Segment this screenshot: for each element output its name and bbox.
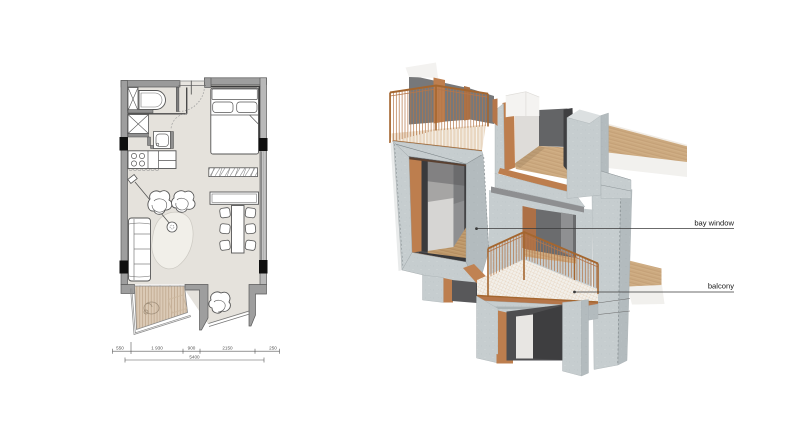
svg-text:900: 900 xyxy=(188,346,196,351)
svg-text:1 930: 1 930 xyxy=(151,346,163,351)
svg-text:balcony: balcony xyxy=(708,282,734,291)
svg-text:bay window: bay window xyxy=(694,219,734,228)
svg-text:250: 250 xyxy=(269,346,277,351)
svg-text:5400: 5400 xyxy=(189,355,200,360)
svg-text:2150: 2150 xyxy=(222,346,233,351)
svg-text:550: 550 xyxy=(116,346,124,351)
